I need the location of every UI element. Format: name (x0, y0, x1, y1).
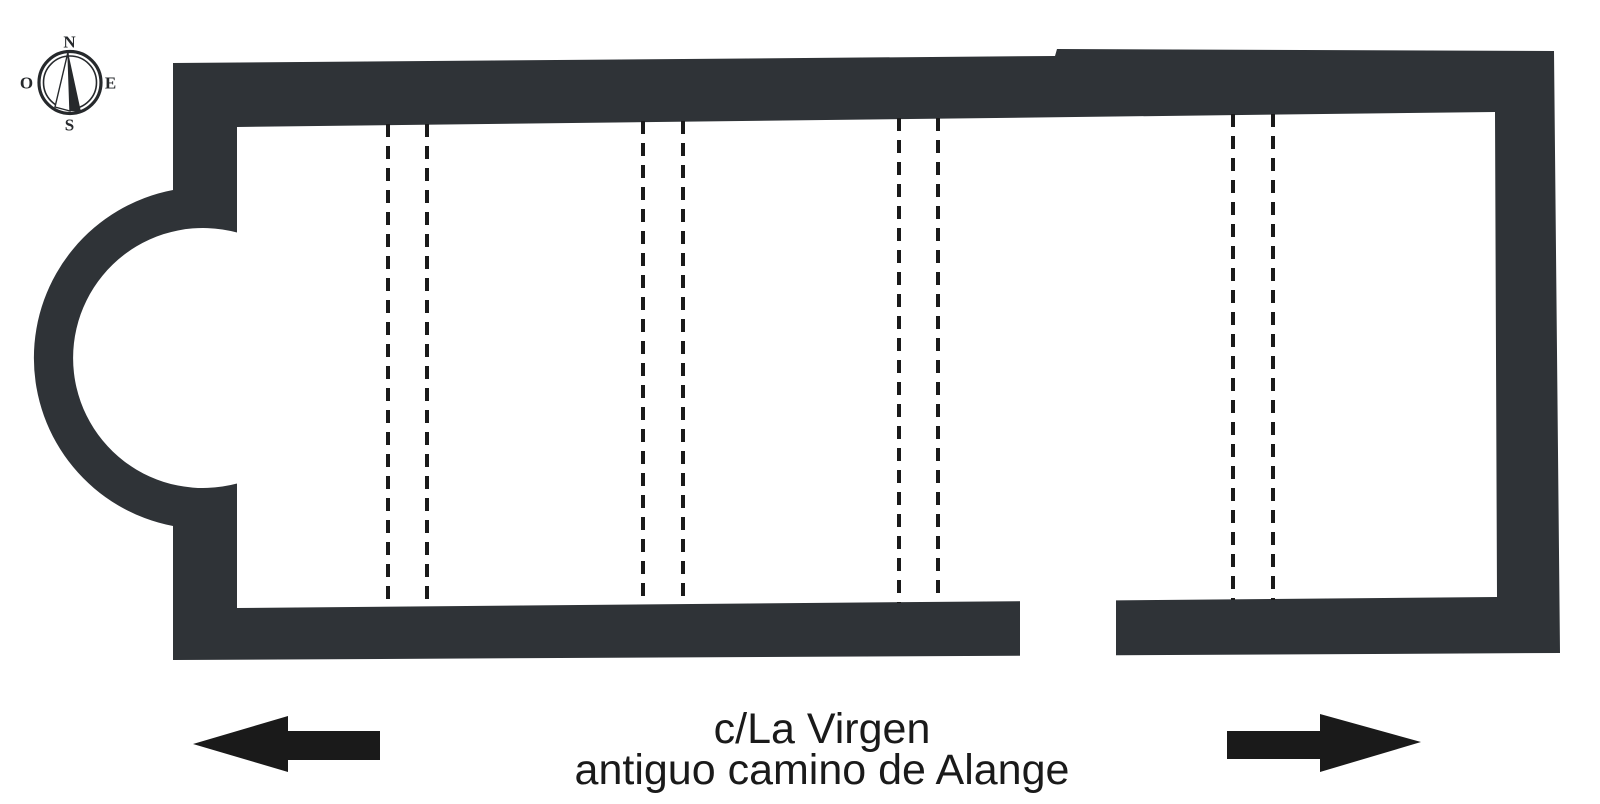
street-arrow-right (1227, 714, 1421, 772)
floor-plan-figure: N S E O c/La Virgen antiguo camino de Al… (0, 0, 1600, 804)
street-name-line2: antiguo camino de Alange (575, 746, 1070, 794)
compass-label-north: N (63, 33, 76, 52)
compass-label-west: O (20, 74, 33, 93)
compass-needle-light-half (55, 52, 70, 111)
compass-rose: N S E O (20, 33, 116, 135)
compass-label-east: E (105, 74, 116, 93)
building-walls (34, 49, 1560, 660)
compass-label-south: S (65, 116, 74, 135)
doorway-gap (1020, 590, 1116, 664)
bay-division-lines (388, 114, 1273, 607)
street-arrow-left (193, 716, 380, 772)
street-caption: c/La Virgen antiguo camino de Alange (575, 705, 1070, 794)
